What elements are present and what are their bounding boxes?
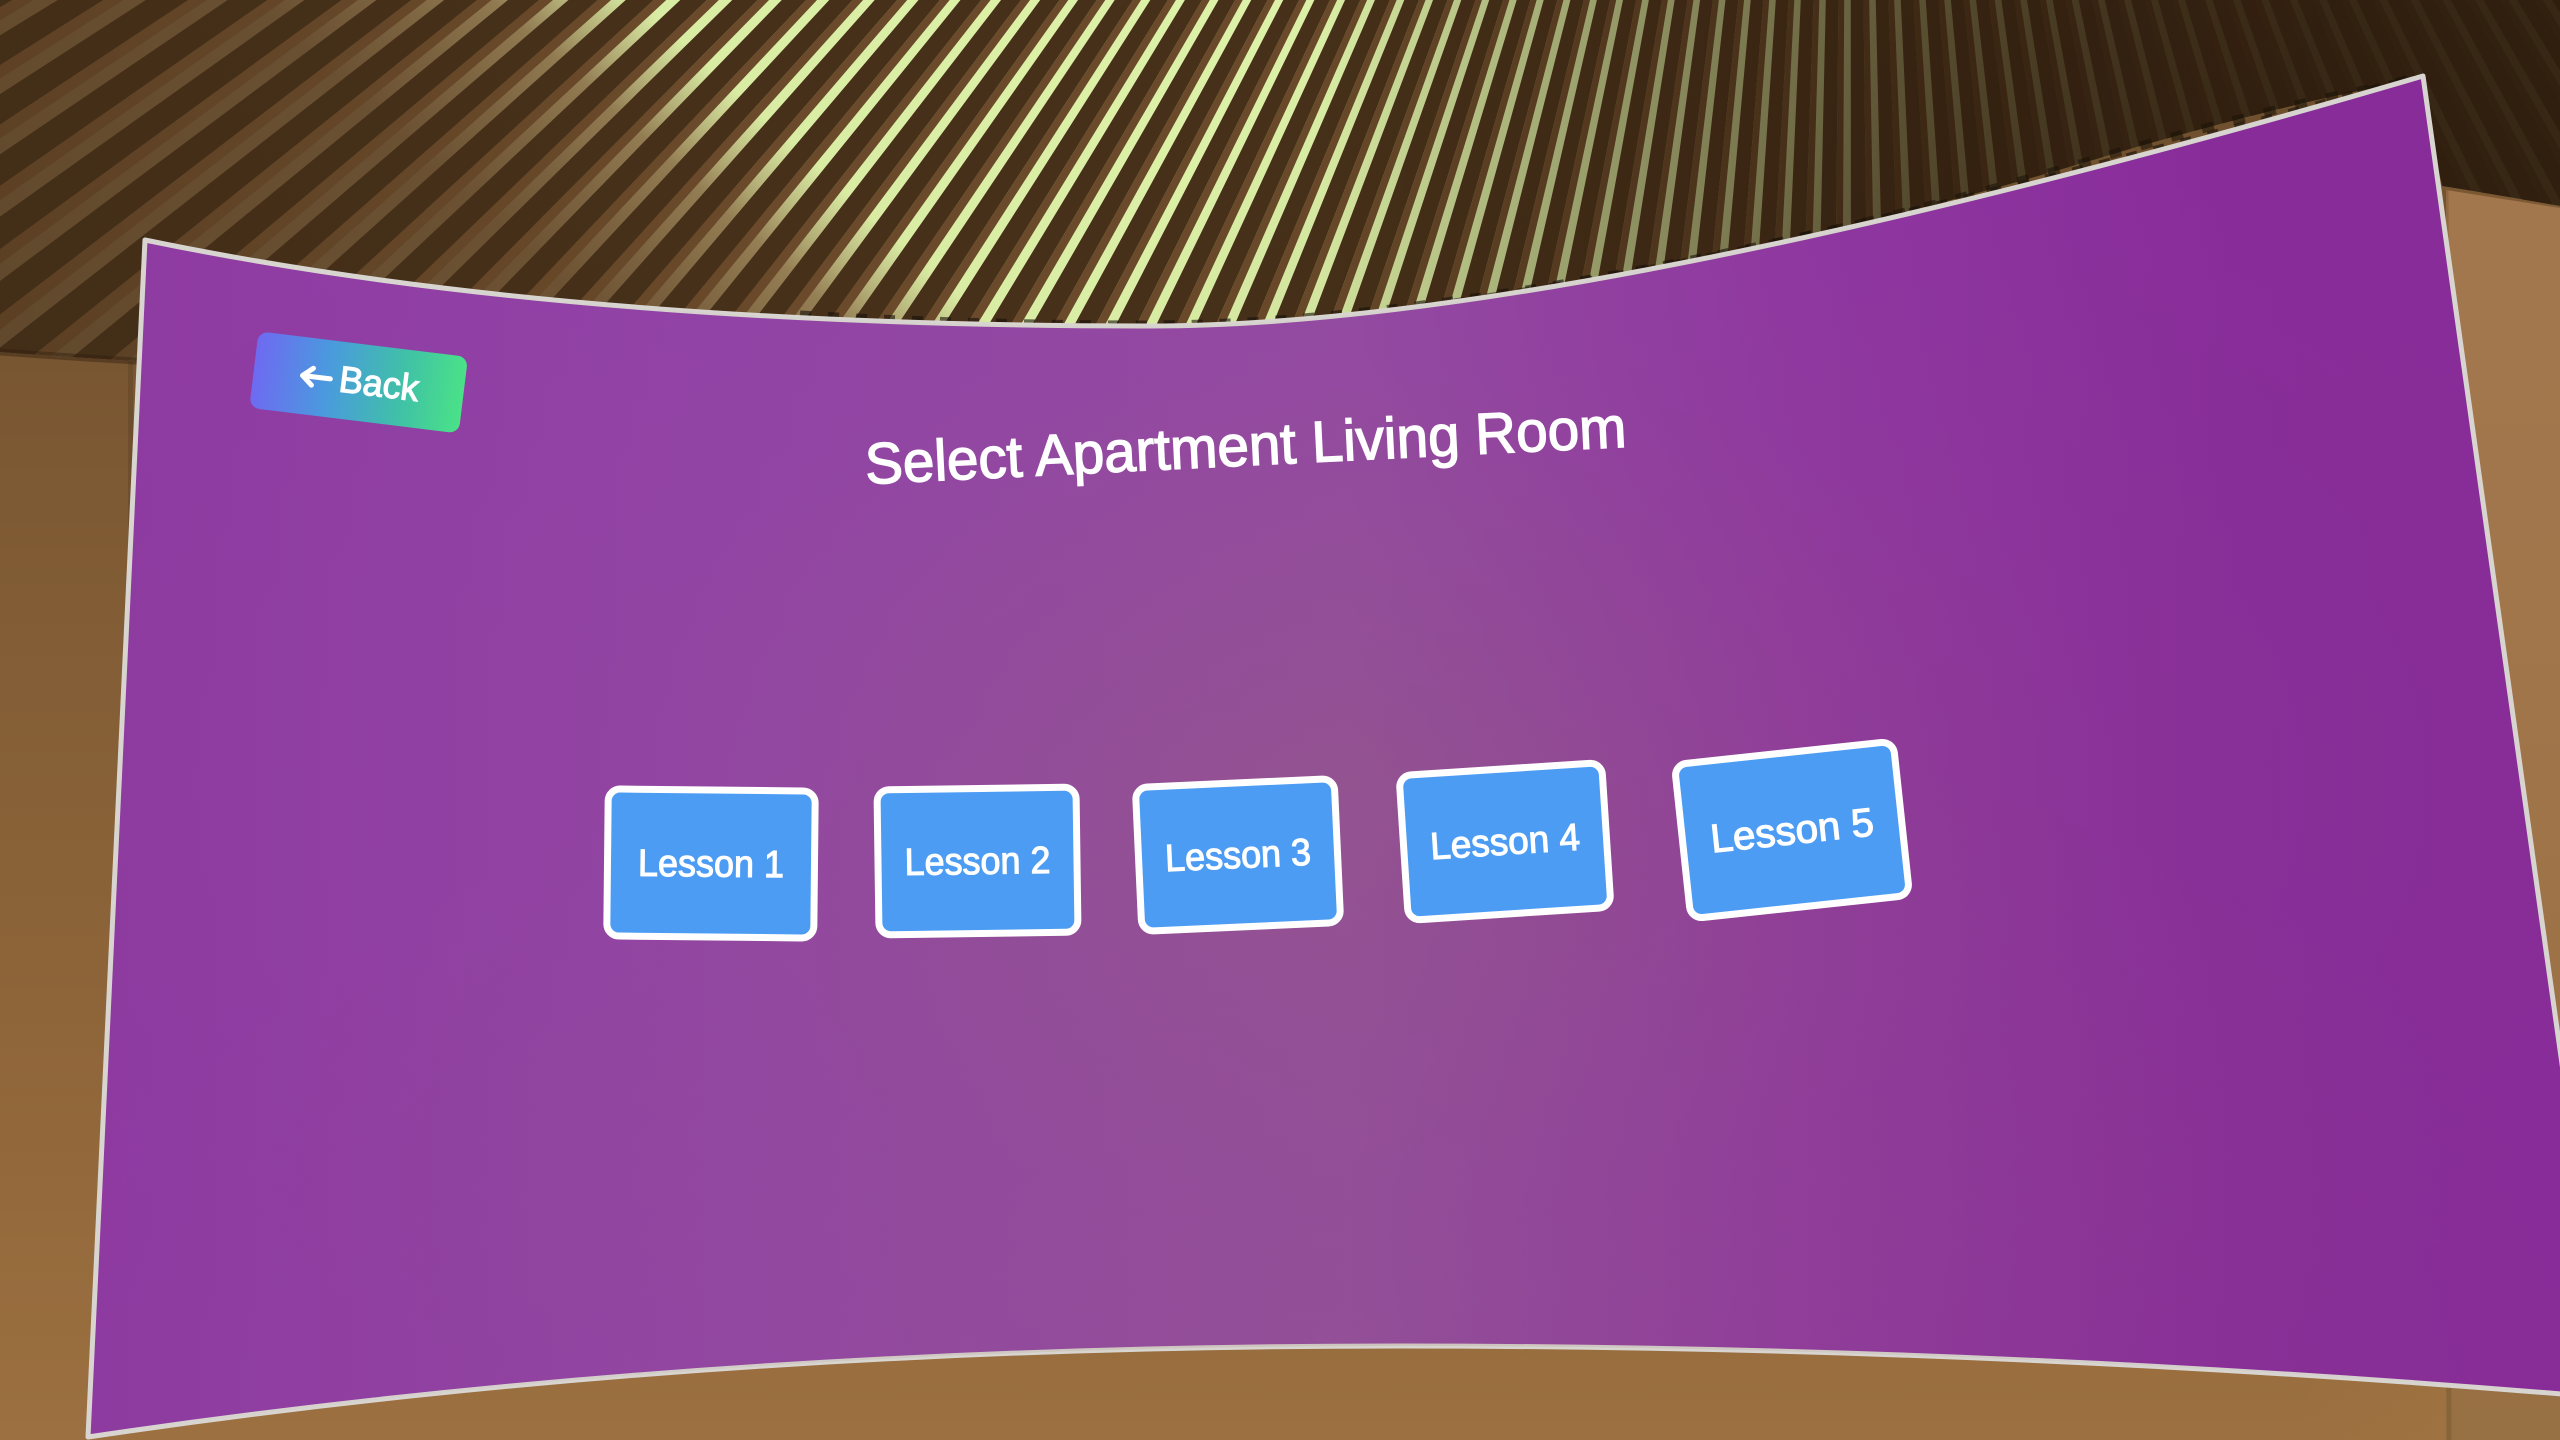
svg-text:Lesson 2: Lesson 2 bbox=[904, 840, 1051, 884]
svg-text:Lesson 3: Lesson 3 bbox=[1164, 832, 1312, 881]
svg-text:Lesson 1: Lesson 1 bbox=[638, 843, 784, 887]
